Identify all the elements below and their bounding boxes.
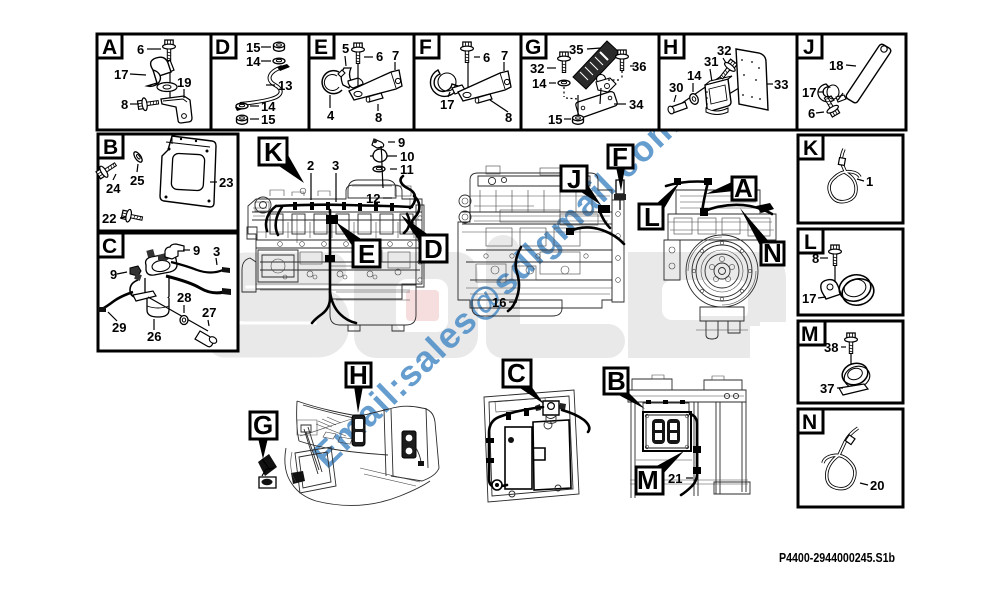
svg-text:7: 7 (392, 48, 399, 63)
svg-text:M: M (801, 323, 819, 346)
svg-text:F: F (419, 36, 432, 59)
svg-text:33: 33 (774, 77, 788, 92)
svg-text:28: 28 (177, 290, 191, 305)
svg-text:15: 15 (246, 40, 260, 55)
svg-text:20: 20 (870, 478, 884, 493)
svg-text:5: 5 (342, 41, 349, 56)
svg-text:14: 14 (532, 76, 547, 91)
svg-text:11: 11 (400, 162, 414, 177)
svg-text:D: D (215, 36, 230, 59)
svg-text:18: 18 (829, 58, 843, 73)
svg-text:14: 14 (687, 68, 702, 83)
svg-text:M: M (637, 465, 659, 495)
svg-text:19: 19 (177, 75, 191, 90)
svg-text:3: 3 (213, 244, 220, 259)
svg-text:B: B (607, 366, 626, 396)
svg-text:2: 2 (307, 158, 314, 173)
svg-text:8: 8 (505, 110, 512, 125)
svg-text:N: N (763, 238, 782, 268)
svg-text:1: 1 (866, 174, 873, 189)
svg-text:17: 17 (802, 291, 816, 306)
svg-text:N: N (802, 411, 817, 434)
svg-text:B: B (103, 136, 118, 159)
svg-text:30: 30 (669, 80, 683, 95)
svg-text:38: 38 (824, 340, 838, 355)
svg-text:23: 23 (219, 175, 233, 190)
svg-text:G: G (525, 36, 541, 59)
svg-text:P4400-2944000245.S1b: P4400-2944000245.S1b (779, 550, 895, 565)
svg-text:9: 9 (398, 135, 405, 150)
svg-text:9: 9 (193, 243, 200, 258)
svg-text:34: 34 (629, 97, 644, 112)
svg-text:25: 25 (130, 173, 144, 188)
svg-text:22: 22 (102, 211, 116, 226)
svg-text:32: 32 (530, 61, 544, 76)
svg-text:D: D (424, 234, 443, 264)
svg-text:A: A (734, 173, 753, 203)
svg-text:C: C (102, 235, 117, 258)
svg-text:17: 17 (114, 67, 128, 82)
svg-text:3: 3 (332, 158, 339, 173)
svg-text:13: 13 (278, 78, 292, 93)
svg-text:K: K (264, 137, 283, 167)
svg-text:C: C (507, 358, 526, 388)
svg-text:4: 4 (327, 108, 335, 123)
svg-text:8: 8 (375, 110, 382, 125)
svg-text:H: H (349, 360, 368, 390)
svg-text:27: 27 (202, 305, 216, 320)
svg-text:8: 8 (812, 251, 819, 266)
svg-text:36: 36 (632, 59, 646, 74)
svg-text:H: H (663, 36, 678, 59)
svg-text:14: 14 (246, 54, 261, 69)
svg-text:6: 6 (137, 42, 144, 57)
svg-text:7: 7 (501, 48, 508, 63)
svg-text:6: 6 (376, 49, 383, 64)
svg-text:24: 24 (106, 181, 121, 196)
svg-text:G: G (253, 410, 273, 440)
svg-text:17: 17 (802, 85, 816, 100)
svg-text:32: 32 (717, 43, 731, 58)
svg-text:9: 9 (110, 267, 117, 282)
svg-text:17: 17 (440, 97, 454, 112)
svg-text:21: 21 (668, 471, 682, 486)
svg-text:J: J (567, 164, 581, 194)
svg-text:12: 12 (366, 191, 380, 206)
svg-text:26: 26 (147, 329, 161, 344)
svg-text:16: 16 (492, 295, 506, 310)
svg-text:E: E (358, 239, 375, 269)
svg-text:6: 6 (808, 106, 815, 121)
svg-text:E: E (314, 36, 328, 59)
svg-text:37: 37 (820, 381, 834, 396)
svg-text:K: K (803, 137, 818, 160)
svg-text:35: 35 (569, 42, 583, 57)
svg-text:L: L (644, 202, 660, 232)
svg-text:15: 15 (261, 112, 275, 127)
svg-text:15: 15 (548, 112, 562, 127)
svg-text:F: F (612, 142, 628, 172)
svg-text:29: 29 (112, 320, 126, 335)
svg-text:6: 6 (483, 50, 490, 65)
svg-text:J: J (803, 36, 815, 59)
svg-text:8: 8 (121, 97, 128, 112)
svg-text:A: A (102, 36, 117, 59)
